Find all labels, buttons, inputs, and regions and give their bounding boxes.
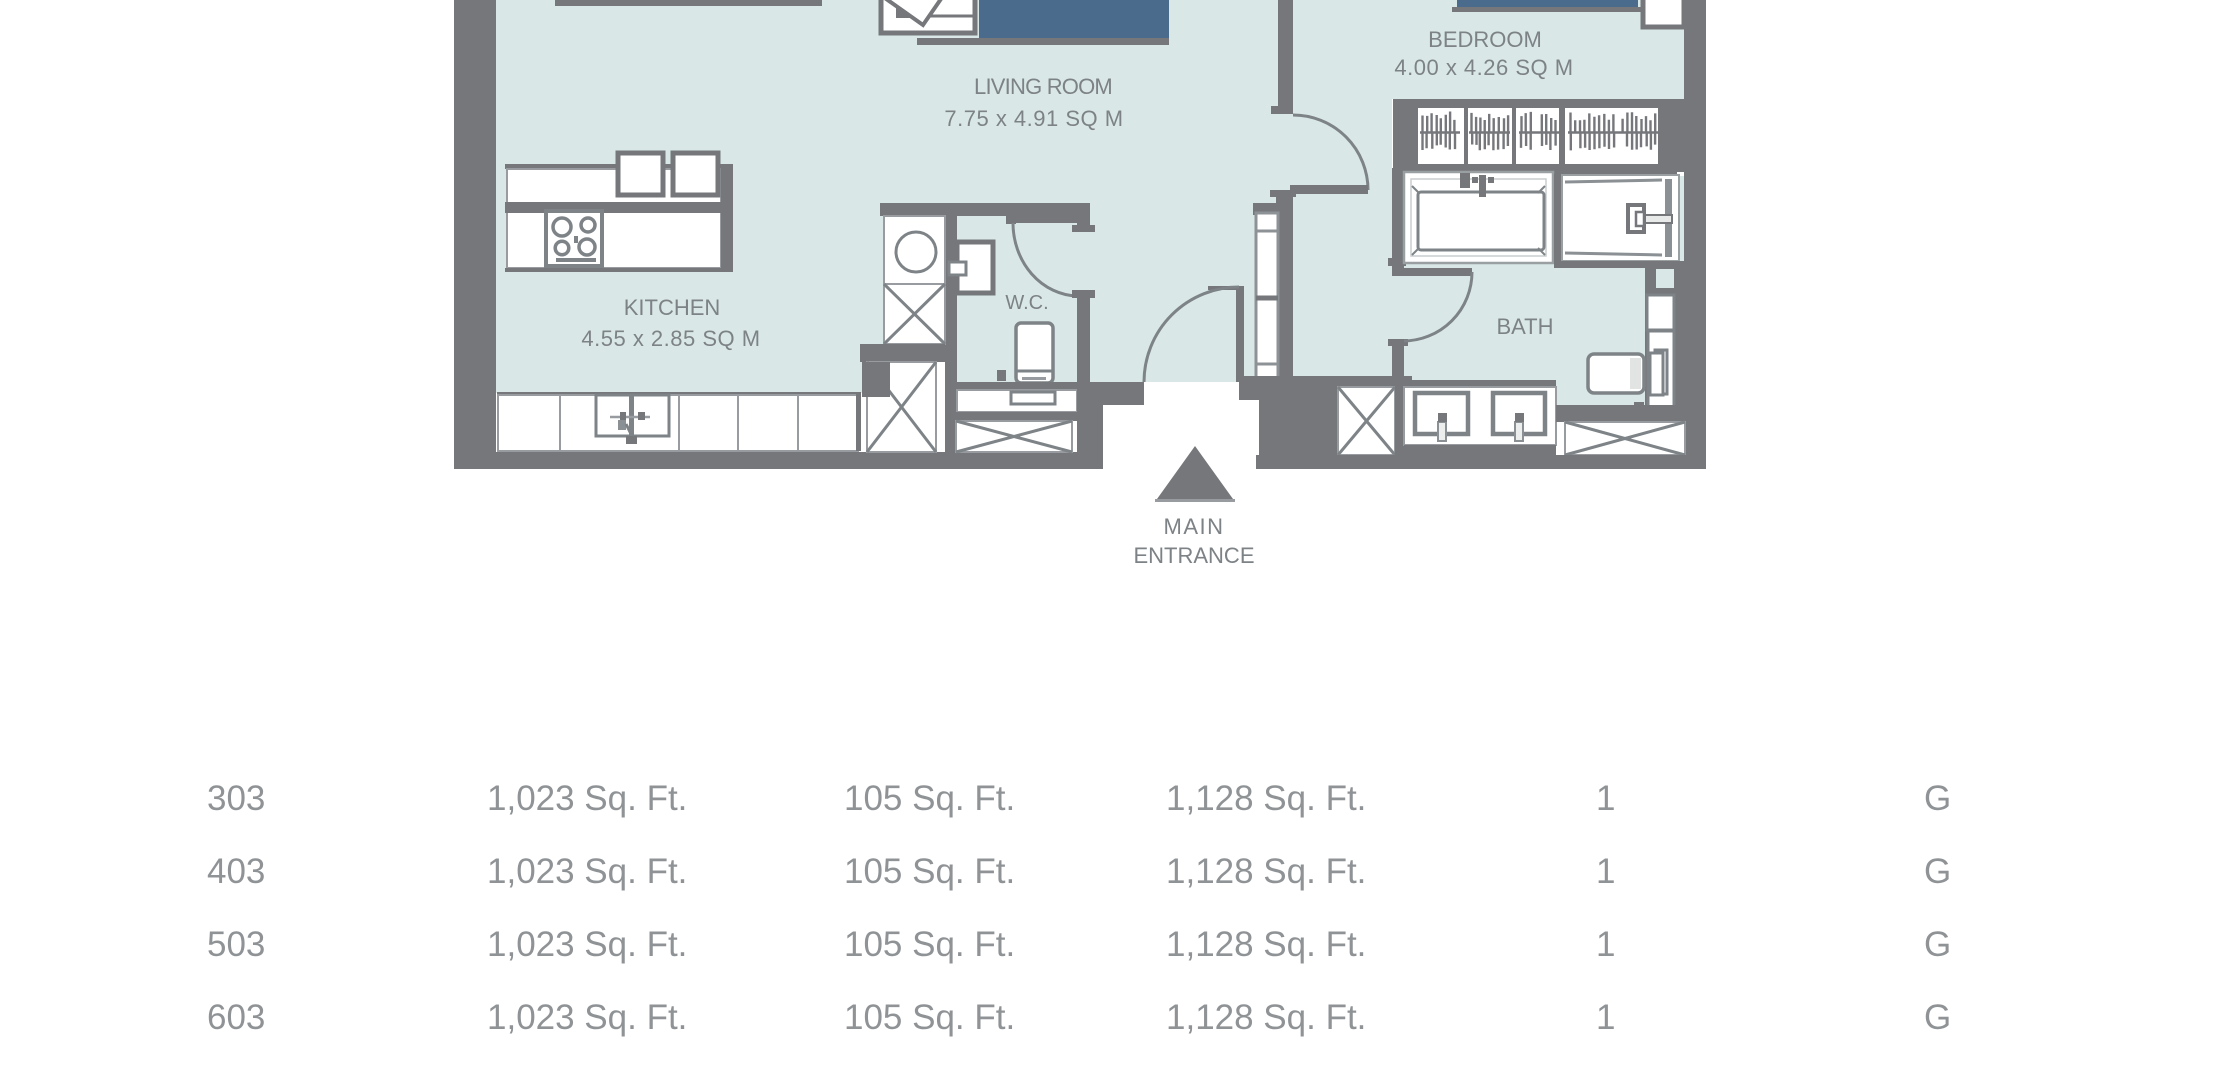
- svg-text:G: G: [1924, 925, 1951, 964]
- svg-text:105 Sq. Ft.: 105 Sq. Ft.: [844, 779, 1015, 818]
- svg-text:4.55 x 2.85 SQ M: 4.55 x 2.85 SQ M: [581, 326, 760, 351]
- svg-text:1: 1: [1596, 852, 1615, 891]
- svg-text:G: G: [1924, 852, 1951, 891]
- svg-text:7.75 x 4.91 SQ M: 7.75 x 4.91 SQ M: [944, 106, 1123, 131]
- svg-text:105 Sq. Ft.: 105 Sq. Ft.: [844, 925, 1015, 964]
- svg-text:303: 303: [207, 779, 265, 818]
- svg-text:1,128 Sq. Ft.: 1,128 Sq. Ft.: [1166, 925, 1366, 964]
- svg-text:G: G: [1924, 998, 1951, 1037]
- svg-text:1,023 Sq. Ft.: 1,023 Sq. Ft.: [487, 998, 687, 1037]
- svg-text:1,128 Sq. Ft.: 1,128 Sq. Ft.: [1166, 852, 1366, 891]
- svg-text:MAIN: MAIN: [1164, 514, 1225, 539]
- svg-text:503: 503: [207, 925, 265, 964]
- svg-text:ENTRANCE: ENTRANCE: [1133, 543, 1254, 568]
- svg-text:KITCHEN: KITCHEN: [624, 295, 721, 320]
- svg-text:1,023 Sq. Ft.: 1,023 Sq. Ft.: [487, 852, 687, 891]
- svg-text:105 Sq. Ft.: 105 Sq. Ft.: [844, 852, 1015, 891]
- svg-text:1: 1: [1596, 925, 1615, 964]
- svg-text:1,023 Sq. Ft.: 1,023 Sq. Ft.: [487, 925, 687, 964]
- svg-text:403: 403: [207, 852, 265, 891]
- svg-text:BATH: BATH: [1496, 314, 1553, 339]
- svg-text:603: 603: [207, 998, 265, 1037]
- svg-text:W.C.: W.C.: [1005, 292, 1048, 314]
- svg-text:1,023 Sq. Ft.: 1,023 Sq. Ft.: [487, 779, 687, 818]
- svg-text:1,128 Sq. Ft.: 1,128 Sq. Ft.: [1166, 998, 1366, 1037]
- svg-text:G: G: [1924, 779, 1951, 818]
- svg-text:4.00 x 4.26 SQ M: 4.00 x 4.26 SQ M: [1394, 55, 1573, 80]
- svg-text:BEDROOM: BEDROOM: [1428, 27, 1542, 52]
- svg-text:1: 1: [1596, 998, 1615, 1037]
- svg-text:LIVING ROOM: LIVING ROOM: [974, 74, 1112, 99]
- svg-text:105 Sq. Ft.: 105 Sq. Ft.: [844, 998, 1015, 1037]
- svg-text:1: 1: [1596, 779, 1615, 818]
- svg-text:1,128 Sq. Ft.: 1,128 Sq. Ft.: [1166, 779, 1366, 818]
